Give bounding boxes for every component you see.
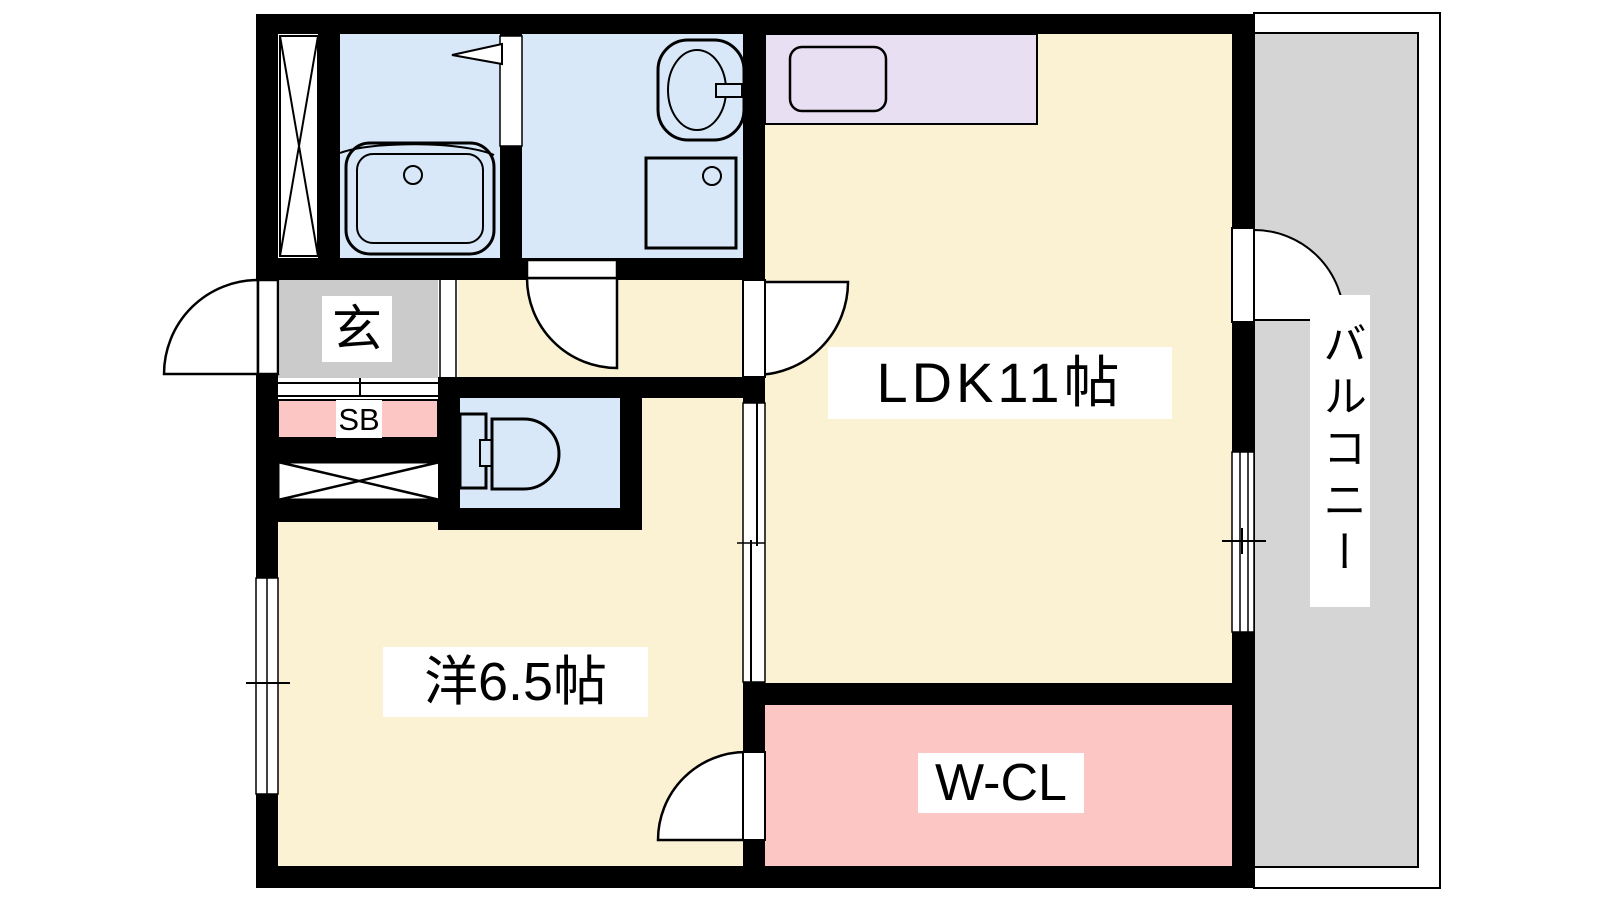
entrance-step bbox=[278, 378, 438, 400]
label-walk-in-closet: W-CL bbox=[918, 753, 1084, 813]
wall-toilet-bottom bbox=[438, 508, 642, 530]
pipe-space bbox=[280, 36, 318, 256]
label-entrance: 玄 bbox=[322, 296, 392, 362]
balcony-door-leaf bbox=[1232, 228, 1254, 322]
washroom-door-leaf bbox=[527, 260, 617, 278]
wall-below-wet-area bbox=[256, 258, 765, 280]
wall-right bbox=[1232, 14, 1254, 888]
entrance-door-arc bbox=[164, 280, 258, 374]
entrance-door bbox=[164, 280, 280, 374]
label-shoe-box: SB bbox=[336, 400, 382, 438]
wall-above-closet bbox=[743, 683, 1232, 705]
label-western-room: 洋6.5帖 bbox=[383, 647, 648, 717]
wall-below-hallway bbox=[438, 377, 765, 398]
room-washroom bbox=[522, 34, 743, 258]
closet-door-leaf bbox=[743, 752, 765, 840]
floor-plan: 玄 SB 洋6.5帖 LDK11帖 W-CL バルコニー bbox=[0, 0, 1600, 900]
wall-washroom-ldk bbox=[743, 34, 765, 258]
entrance-threshold bbox=[438, 280, 458, 377]
label-ldk: LDK11帖 bbox=[828, 347, 1172, 419]
room-bathroom bbox=[340, 34, 500, 258]
wall-above-western bbox=[256, 500, 460, 522]
wall-shoebox-storage bbox=[278, 438, 440, 462]
label-balcony: バルコニー bbox=[1310, 295, 1370, 607]
washbasin-faucet bbox=[716, 84, 742, 97]
wall-toilet-right bbox=[620, 377, 642, 530]
wall-toilet-left bbox=[438, 377, 460, 530]
wall-pipe-bath bbox=[318, 34, 340, 258]
wall-top bbox=[256, 14, 1254, 34]
storage-counter bbox=[278, 462, 440, 500]
entrance-door-leaf bbox=[258, 280, 278, 374]
hallway-ldk-door-leaf bbox=[743, 280, 765, 377]
